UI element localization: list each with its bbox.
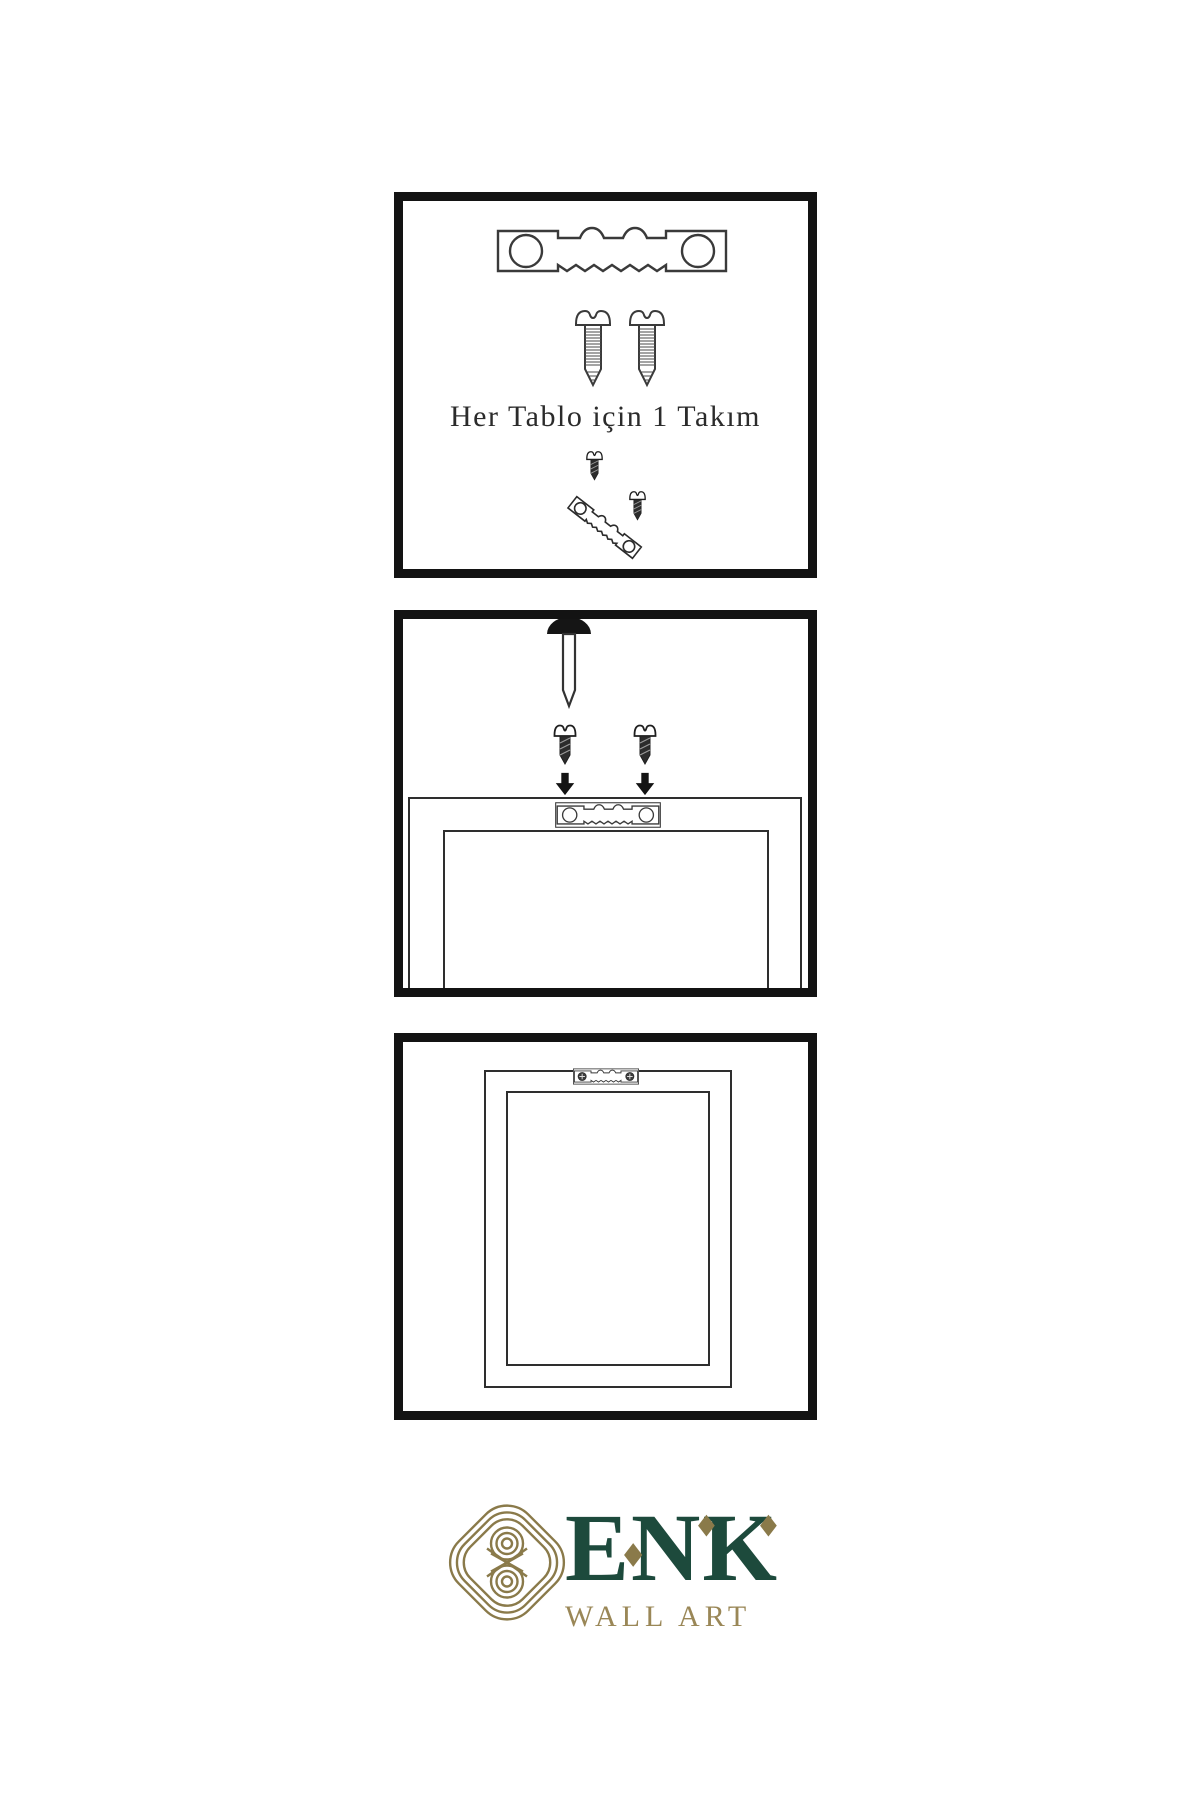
wall-nail-icon <box>546 616 592 720</box>
brand-wordmark: ENK WALL ART <box>565 1500 865 1634</box>
diamond-accent-icon: ◆ <box>760 1510 777 1539</box>
sawtooth-hanger-icon <box>555 802 661 828</box>
step-panel-2 <box>394 610 817 997</box>
screw-dark-icon <box>552 722 578 768</box>
screw-drop-group <box>632 722 658 798</box>
screw-outline-icon <box>627 307 667 389</box>
instruction-sheet: Her Tablo için 1 Takım <box>0 0 1200 1800</box>
down-arrow-icon <box>554 772 576 796</box>
diamond-accent-icon: ◆ <box>698 1510 715 1539</box>
knot-emblem-icon <box>442 1497 572 1628</box>
down-arrow-icon <box>634 772 656 796</box>
screw-dark-icon <box>585 449 604 483</box>
brand-subtitle: WALL ART <box>565 1600 865 1634</box>
step-panel-1: Her Tablo için 1 Takım <box>394 192 817 578</box>
diamond-accent-icon: ◆ <box>624 1538 642 1569</box>
brand-name: ENK <box>565 1500 865 1596</box>
screw-drop-group <box>552 722 578 798</box>
screw-outline-icon <box>573 307 613 389</box>
step1-caption: Her Tablo için 1 Takım <box>403 400 808 434</box>
step-panel-3 <box>394 1033 817 1420</box>
screw-dark-icon <box>628 489 647 523</box>
sawtooth-hanger-icon <box>495 224 729 278</box>
frame-back-inner-edge <box>506 1091 710 1366</box>
screw-dark-icon <box>632 722 658 768</box>
mounted-sawtooth-hanger-icon <box>573 1068 639 1085</box>
screw-into-hanger-icon <box>571 449 681 567</box>
frame-back-inner-edge <box>443 830 769 997</box>
